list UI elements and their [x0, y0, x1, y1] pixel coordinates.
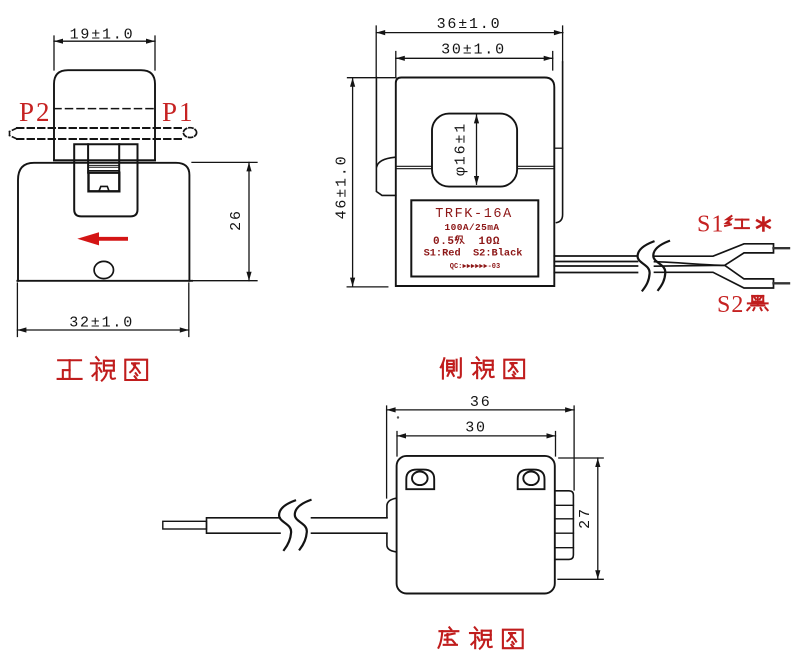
svg-text:26: 26: [228, 209, 245, 231]
svg-text:30: 30: [465, 420, 487, 437]
svg-text:P2: P2: [19, 97, 52, 127]
svg-text:TRFK-16A: TRFK-16A: [435, 207, 513, 222]
svg-text:S2: S2: [717, 292, 744, 318]
svg-text:30±1.0: 30±1.0: [441, 42, 506, 59]
svg-text:S1:Red S2:Black: S1:Red S2:Black: [424, 248, 523, 260]
svg-text:100A/25mA: 100A/25mA: [445, 222, 500, 233]
svg-text:46±1.0: 46±1.0: [334, 155, 351, 220]
svg-text:32±1.0: 32±1.0: [69, 315, 134, 332]
svg-text:0.5: 0.5: [433, 236, 455, 248]
svg-text:36: 36: [470, 394, 492, 411]
svg-text:S1: S1: [697, 212, 724, 238]
svg-text:QC:►►►►►►-03: QC:►►►►►►-03: [450, 263, 500, 271]
svg-text:P1: P1: [162, 97, 195, 127]
svg-text:27: 27: [577, 507, 594, 529]
svg-text:19±1.0: 19±1.0: [70, 27, 135, 44]
svg-text:φ16±1: φ16±1: [453, 122, 470, 176]
svg-text:10Ω: 10Ω: [479, 236, 501, 248]
svg-text:36±1.0: 36±1.0: [437, 16, 502, 33]
